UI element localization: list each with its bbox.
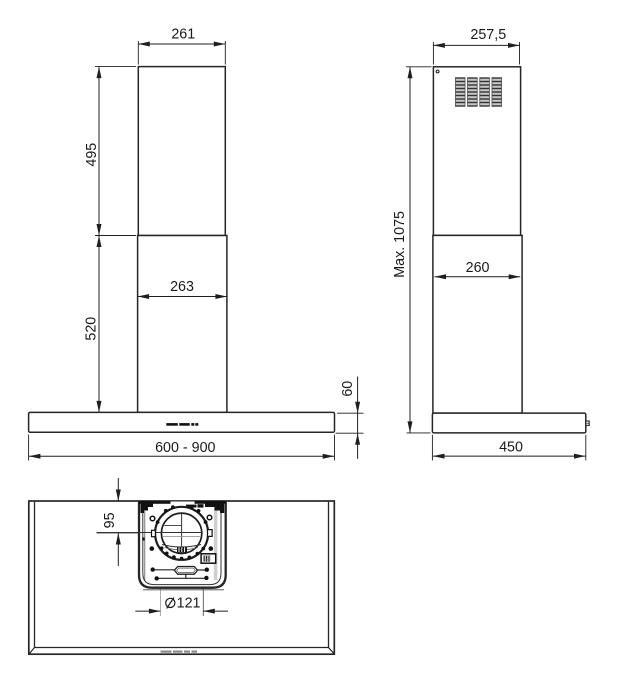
svg-text:495: 495 <box>84 143 100 167</box>
svg-text:Max. 1075: Max. 1075 <box>392 211 408 278</box>
svg-text:520: 520 <box>84 317 100 341</box>
svg-text:260: 260 <box>466 260 490 276</box>
svg-text:95: 95 <box>102 512 118 528</box>
svg-text:263: 263 <box>170 279 194 295</box>
svg-text:60: 60 <box>340 381 356 397</box>
svg-text:257,5: 257,5 <box>470 27 506 43</box>
svg-text:450: 450 <box>499 440 523 456</box>
svg-text:261: 261 <box>171 27 195 43</box>
svg-text:600 - 900: 600 - 900 <box>155 440 215 456</box>
svg-text:121: 121 <box>177 595 201 611</box>
